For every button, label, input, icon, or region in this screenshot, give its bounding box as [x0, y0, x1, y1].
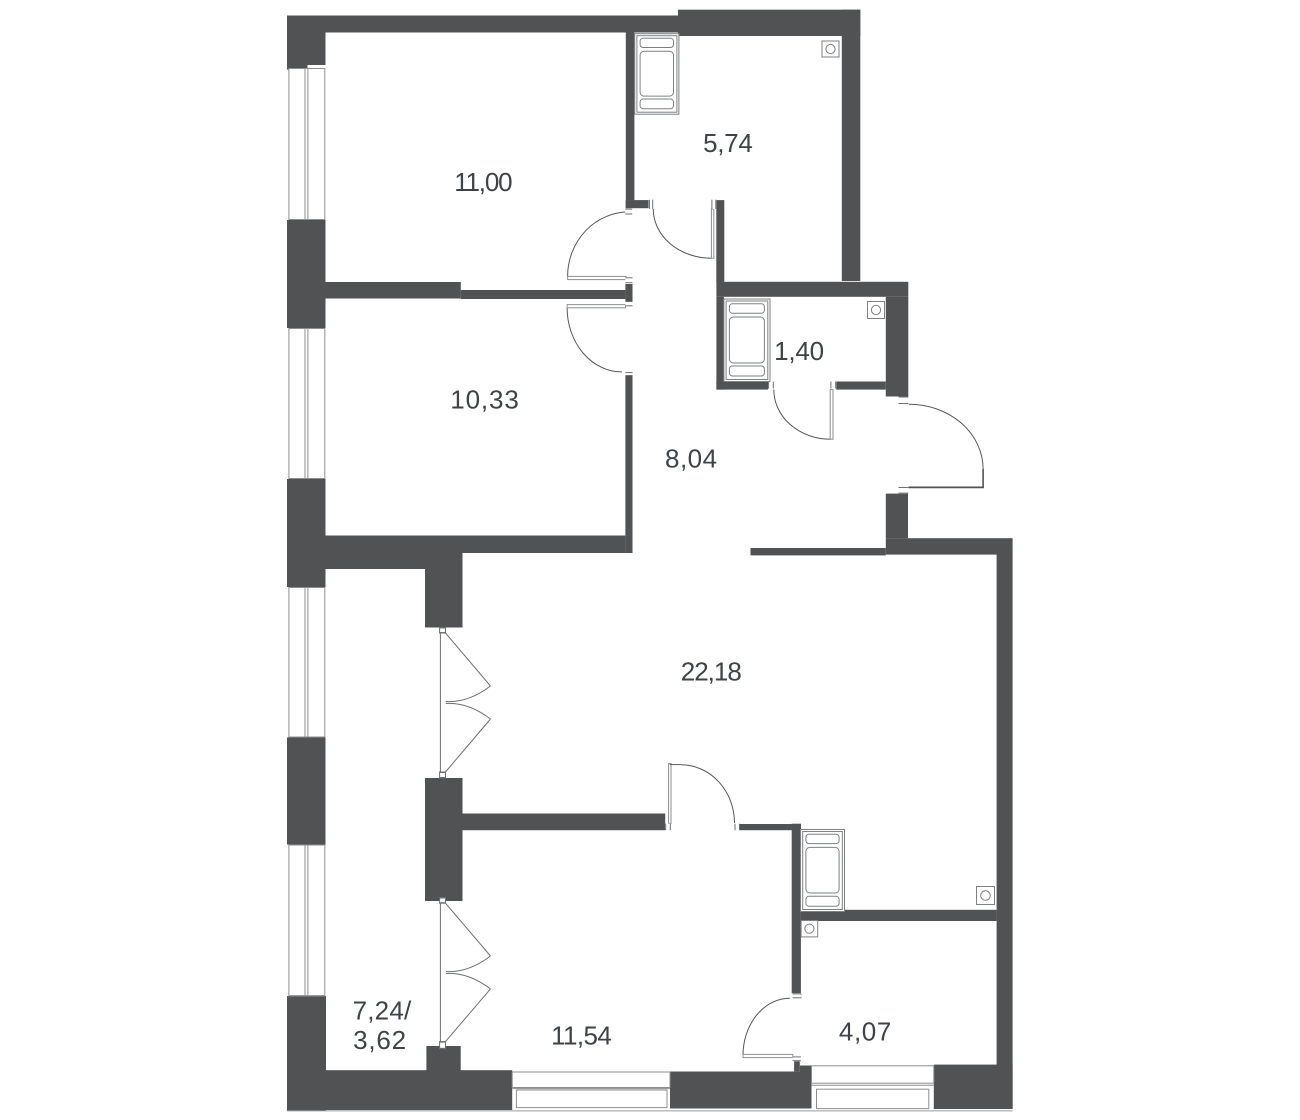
svg-text:10,33: 10,33	[450, 385, 520, 415]
svg-text:11,54: 11,54	[551, 1021, 611, 1051]
svg-text:1,40: 1,40	[774, 336, 824, 366]
svg-text:8,04: 8,04	[665, 444, 718, 474]
svg-text:11,00: 11,00	[454, 167, 512, 197]
svg-text:4,07: 4,07	[839, 1017, 892, 1047]
svg-text:7,24/: 7,24/	[353, 996, 412, 1026]
svg-text:22,18: 22,18	[681, 657, 742, 687]
svg-text:3,62: 3,62	[353, 1025, 407, 1055]
svg-text:5,74: 5,74	[703, 128, 752, 158]
